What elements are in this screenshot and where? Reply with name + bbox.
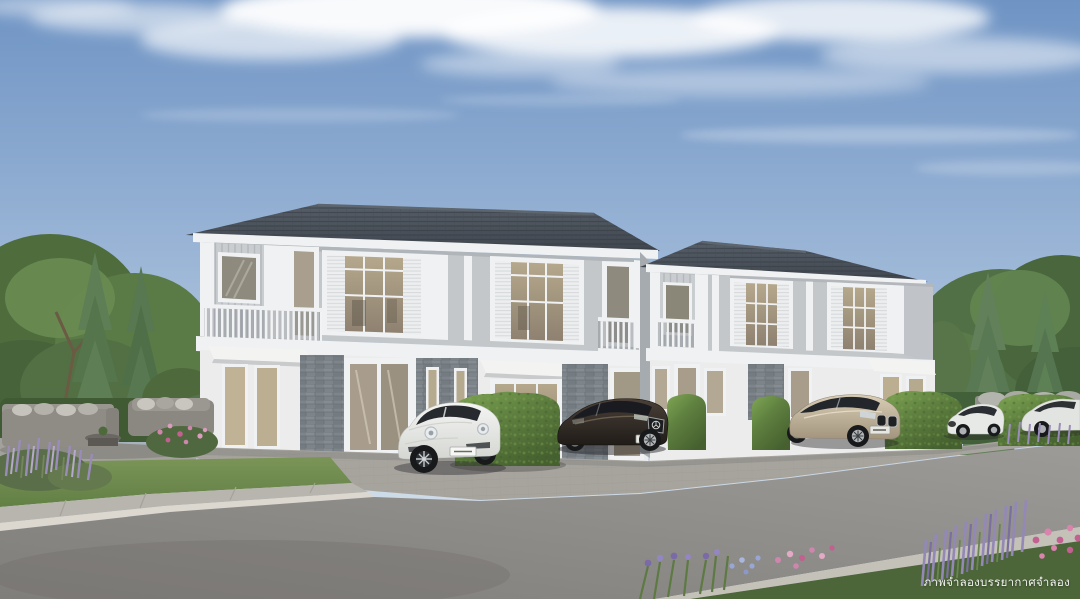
kidney-grille-icon (888, 416, 897, 427)
hedge-3 (752, 396, 790, 450)
stone-panel (300, 355, 344, 455)
window-upper-r2 (730, 278, 793, 349)
architectural-render: ภาพจำลองบรรยากาศจำลอง (0, 0, 1080, 599)
window-upper-2 (322, 250, 426, 339)
window-upper-3 (490, 256, 584, 345)
scene-canvas (0, 0, 1080, 599)
window-upper-1 (218, 252, 260, 304)
window-upper-r3 (827, 282, 891, 353)
kidney-grille-icon (877, 415, 886, 426)
balcony-railing-r1 (656, 318, 700, 353)
grille (948, 421, 956, 427)
shutter-icon (327, 255, 345, 332)
hedge-2 (667, 394, 706, 450)
